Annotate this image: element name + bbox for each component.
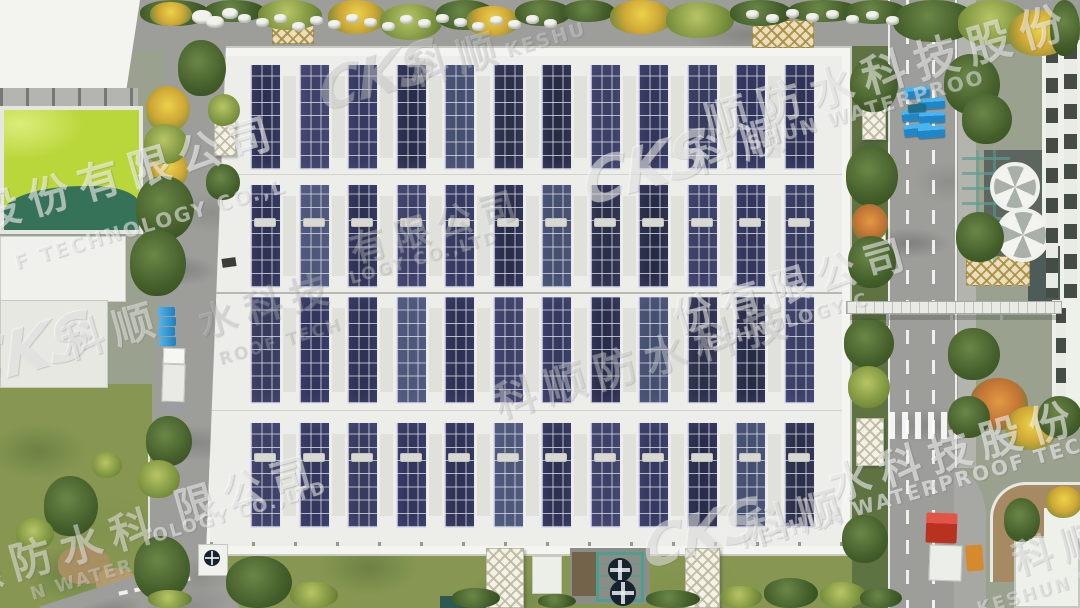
roof-walkway-strip bbox=[526, 76, 539, 158]
solar-panel-column bbox=[493, 422, 524, 528]
roof-vent bbox=[594, 453, 616, 462]
tree bbox=[563, 0, 615, 22]
window-strip bbox=[1064, 44, 1077, 298]
tree bbox=[764, 578, 818, 608]
solar-panel-column bbox=[347, 296, 378, 404]
solar-panel-column bbox=[541, 184, 572, 288]
solar-panel-column bbox=[347, 422, 378, 528]
tree bbox=[666, 2, 734, 38]
roof-vent bbox=[254, 218, 276, 227]
blue-truck bbox=[908, 103, 927, 113]
cooling-fan-icon bbox=[610, 580, 636, 606]
solar-panel-column bbox=[638, 184, 669, 288]
roof-vent bbox=[351, 218, 373, 227]
solar-panel-column bbox=[396, 64, 427, 170]
tree bbox=[208, 94, 240, 126]
crosswalk bbox=[889, 412, 957, 439]
white-sack bbox=[400, 15, 413, 24]
solar-panel-column bbox=[735, 422, 766, 528]
roof-vent bbox=[400, 453, 422, 462]
building-left-upper bbox=[0, 236, 126, 302]
aerial-photo-solar-factory: 股份有限公司F TECHNOLOGY CO.,LCKS科顺有限公司LOGY CO… bbox=[0, 0, 1080, 608]
blue-truck bbox=[918, 125, 946, 139]
roof-vent bbox=[788, 218, 810, 227]
white-panel bbox=[532, 556, 562, 594]
roof-walkway-strip bbox=[526, 434, 539, 516]
roof-vent bbox=[303, 218, 325, 227]
blue-truck bbox=[919, 111, 946, 123]
roof-vent bbox=[448, 453, 470, 462]
solar-panel-column bbox=[444, 64, 475, 170]
solar-panel-column bbox=[590, 184, 621, 288]
solar-panel-column bbox=[396, 184, 427, 288]
roof-walkway-strip bbox=[623, 196, 636, 276]
white-truck-trailer bbox=[161, 364, 185, 403]
roof-vent bbox=[642, 453, 664, 462]
roof-walkway-strip bbox=[380, 196, 393, 276]
solar-panel-column bbox=[444, 296, 475, 404]
bridge-leg bbox=[950, 314, 953, 326]
roof-vent bbox=[739, 453, 761, 462]
tree bbox=[610, 0, 674, 34]
roof-vent bbox=[545, 453, 567, 462]
roof-drains bbox=[210, 542, 846, 546]
white-sack bbox=[806, 13, 819, 22]
roof-vent bbox=[254, 453, 276, 462]
cooling-fan-icon bbox=[996, 208, 1050, 262]
white-sack bbox=[766, 14, 779, 23]
roof-walkway-strip bbox=[283, 196, 296, 276]
solar-panel-column bbox=[250, 296, 281, 404]
white-sack bbox=[490, 16, 503, 25]
white-sack bbox=[310, 16, 323, 25]
pond-dark-water bbox=[4, 186, 139, 230]
tree bbox=[820, 582, 866, 608]
roof-walkway-strip bbox=[332, 76, 345, 158]
roof-walkway-strip bbox=[671, 308, 684, 392]
solar-panel-column bbox=[493, 184, 524, 288]
roof-walkway-strip bbox=[429, 308, 442, 392]
roof-walkway-strip bbox=[477, 308, 490, 392]
bottom-right-buildings bbox=[1014, 536, 1080, 608]
tree bbox=[226, 556, 292, 608]
roof-walkway-strip bbox=[671, 196, 684, 276]
solar-panel-column bbox=[638, 296, 669, 404]
tree bbox=[178, 40, 226, 96]
tree bbox=[150, 2, 192, 26]
cooling-fan-icon bbox=[608, 558, 632, 582]
tree bbox=[148, 590, 192, 608]
blue-barrel bbox=[159, 317, 176, 326]
blue-barrel bbox=[158, 307, 175, 316]
bridge-leg bbox=[886, 314, 889, 326]
tree bbox=[956, 212, 1004, 262]
white-sack bbox=[454, 18, 467, 27]
roof-vent bbox=[642, 218, 664, 227]
solar-panel-column bbox=[396, 296, 427, 404]
roof-walkway-strip bbox=[768, 196, 781, 276]
white-sack bbox=[544, 19, 557, 28]
pipe-bridge bbox=[846, 301, 1062, 314]
white-truck-rear bbox=[165, 402, 186, 415]
white-sack bbox=[238, 14, 251, 23]
roof-walkway-strip bbox=[283, 308, 296, 392]
roof-walkway-strip bbox=[574, 434, 587, 516]
solar-panel-column bbox=[735, 64, 766, 170]
roof-walkway-strip bbox=[671, 76, 684, 158]
solar-panel-column bbox=[687, 422, 718, 528]
roof-walkway-strip bbox=[623, 76, 636, 158]
solar-panel-column bbox=[784, 64, 815, 170]
roof-walkway-strip bbox=[768, 76, 781, 158]
white-sack bbox=[346, 14, 359, 23]
white-sack bbox=[292, 22, 305, 31]
white-sack bbox=[256, 18, 269, 27]
solar-panel-column bbox=[250, 64, 281, 170]
tree bbox=[842, 515, 888, 563]
roof-vent bbox=[545, 218, 567, 227]
right-road-widening bbox=[954, 472, 986, 608]
white-sack bbox=[328, 20, 341, 29]
white-sack bbox=[786, 9, 799, 18]
solar-panel-column bbox=[347, 64, 378, 170]
warehouse-roof-topleft bbox=[0, 0, 140, 92]
solar-panel-column bbox=[396, 422, 427, 528]
solar-panel-column bbox=[784, 422, 815, 528]
roof-walkway-strip bbox=[332, 434, 345, 516]
white-sack bbox=[472, 22, 485, 31]
tree bbox=[138, 460, 180, 498]
roof-object bbox=[221, 257, 236, 268]
roof-walkway-strip bbox=[332, 308, 345, 392]
solar-panel-column bbox=[541, 64, 572, 170]
solar-panel-column bbox=[687, 64, 718, 170]
solar-panel-column bbox=[493, 64, 524, 170]
white-sack bbox=[826, 10, 839, 19]
tree bbox=[538, 594, 576, 608]
solar-panel-column bbox=[735, 296, 766, 404]
forklift bbox=[965, 544, 984, 571]
solar-panel-column bbox=[590, 422, 621, 528]
tree bbox=[144, 124, 188, 164]
tree bbox=[206, 164, 240, 200]
solar-panel-column bbox=[590, 296, 621, 404]
roof-walkway-strip bbox=[768, 308, 781, 392]
tree bbox=[92, 452, 122, 478]
tree bbox=[846, 146, 898, 206]
roof-vent bbox=[351, 453, 373, 462]
roof-walkway-strip bbox=[720, 434, 733, 516]
roof-walkway-strip bbox=[623, 434, 636, 516]
solar-panel-column bbox=[638, 422, 669, 528]
roof-walkway-strip bbox=[526, 308, 539, 392]
tree bbox=[730, 0, 792, 26]
roof-vent bbox=[691, 453, 713, 462]
tree bbox=[1038, 396, 1080, 438]
white-sack bbox=[886, 16, 899, 25]
tree bbox=[948, 328, 1000, 380]
blue-barrel bbox=[159, 337, 176, 346]
warehouse-edge-strip bbox=[0, 88, 138, 106]
white-sack bbox=[866, 11, 879, 20]
tree bbox=[1050, 0, 1080, 56]
tree bbox=[860, 588, 902, 608]
solar-panel-column bbox=[541, 422, 572, 528]
solar-panel-column bbox=[299, 184, 330, 288]
solar-panel-column bbox=[347, 184, 378, 288]
roof-walkway-strip bbox=[429, 434, 442, 516]
solar-panel-column bbox=[784, 296, 815, 404]
solar-panel-column bbox=[250, 184, 281, 288]
red-truck-cab bbox=[925, 512, 957, 543]
ac-fan-icon bbox=[204, 550, 220, 566]
solar-panel-column bbox=[299, 422, 330, 528]
solar-panel-column bbox=[590, 64, 621, 170]
roof-seam bbox=[210, 410, 842, 411]
roof-walkway-strip bbox=[380, 76, 393, 158]
solar-panel-column bbox=[687, 296, 718, 404]
roof-walkway-strip bbox=[623, 308, 636, 392]
roof-walkway-strip bbox=[477, 434, 490, 516]
roof-vent bbox=[303, 453, 325, 462]
tree bbox=[290, 582, 338, 608]
solar-panel-column bbox=[299, 296, 330, 404]
roof-walkway-strip bbox=[720, 308, 733, 392]
bridge-leg bbox=[1000, 314, 1003, 324]
solar-panel-column bbox=[784, 184, 815, 288]
roof-walkway-strip bbox=[380, 308, 393, 392]
lattice-fence bbox=[856, 418, 884, 466]
tree bbox=[720, 586, 762, 608]
white-sack bbox=[364, 18, 377, 27]
building-left-lower bbox=[0, 300, 108, 388]
tree bbox=[146, 416, 192, 466]
white-sack bbox=[222, 8, 238, 19]
roof-walkway-strip bbox=[720, 196, 733, 276]
solar-panel-column bbox=[687, 184, 718, 288]
tree bbox=[962, 94, 1012, 144]
solar-panel-column bbox=[735, 184, 766, 288]
white-truck-cab bbox=[163, 348, 186, 365]
solar-panel-column bbox=[493, 296, 524, 404]
roof-walkway-strip bbox=[380, 434, 393, 516]
roof-walkway-strip bbox=[283, 76, 296, 158]
roof-walkway-strip bbox=[574, 196, 587, 276]
roof-vent bbox=[497, 453, 519, 462]
tree bbox=[848, 236, 896, 288]
tree bbox=[646, 590, 700, 608]
tree bbox=[948, 396, 990, 438]
roof-walkway-strip bbox=[332, 196, 345, 276]
roof-seam bbox=[210, 174, 842, 175]
red-truck-trailer bbox=[928, 544, 962, 581]
white-sack bbox=[418, 19, 431, 28]
pipe-bridge-shadow bbox=[850, 315, 1060, 320]
blue-barrel bbox=[158, 327, 175, 336]
white-sack bbox=[274, 14, 287, 23]
white-sack bbox=[526, 15, 539, 24]
roof-vent bbox=[594, 218, 616, 227]
roof-walkway-strip bbox=[477, 76, 490, 158]
solar-panel-column bbox=[299, 64, 330, 170]
tree bbox=[16, 518, 54, 550]
roof-walkway-strip bbox=[574, 76, 587, 158]
roof-walkway-strip bbox=[671, 434, 684, 516]
roof-vent bbox=[691, 218, 713, 227]
tree bbox=[1004, 498, 1040, 542]
roof-walkway-strip bbox=[283, 434, 296, 516]
equipment-box bbox=[572, 552, 596, 596]
white-sack bbox=[436, 14, 449, 23]
tree bbox=[848, 366, 890, 408]
white-sack bbox=[746, 10, 759, 19]
roof-walkway-strip bbox=[768, 434, 781, 516]
white-sack bbox=[508, 20, 521, 29]
roof-walkway-strip bbox=[720, 76, 733, 158]
roof-vent bbox=[788, 453, 810, 462]
window-strip bbox=[1046, 48, 1058, 298]
roof-vent bbox=[448, 218, 470, 227]
tree bbox=[1046, 486, 1080, 518]
roof-walkway-strip bbox=[574, 308, 587, 392]
white-sack bbox=[382, 22, 395, 31]
solar-panel-column bbox=[541, 296, 572, 404]
factory-roof bbox=[200, 46, 852, 556]
white-sack bbox=[846, 15, 859, 24]
solar-panel-column bbox=[638, 64, 669, 170]
roof-vent bbox=[497, 218, 519, 227]
roof-seam bbox=[210, 292, 842, 294]
tree bbox=[130, 230, 186, 296]
roof-vent bbox=[400, 218, 422, 227]
roof-walkway-strip bbox=[429, 196, 442, 276]
roof-walkway-strip bbox=[526, 196, 539, 276]
tree bbox=[850, 58, 898, 112]
solar-panel-column bbox=[444, 184, 475, 288]
solar-panel-column bbox=[444, 422, 475, 528]
cooling-fan-icon bbox=[990, 162, 1040, 212]
roof-walkway-strip bbox=[429, 76, 442, 158]
roof-walkway-strip bbox=[477, 196, 490, 276]
white-sack bbox=[206, 16, 224, 28]
roof-vent bbox=[739, 218, 761, 227]
tree bbox=[452, 588, 500, 608]
solar-array bbox=[200, 46, 852, 556]
solar-panel-column bbox=[250, 422, 281, 528]
water-treatment-pond bbox=[0, 106, 143, 234]
